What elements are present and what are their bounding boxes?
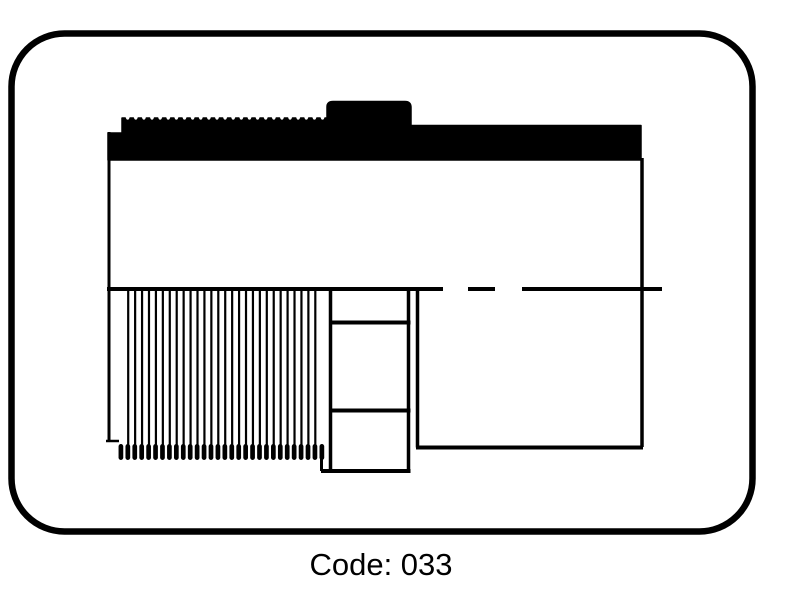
thread-tip — [167, 444, 172, 460]
thread-tip — [292, 444, 297, 460]
thread-tip — [160, 444, 165, 460]
thread-tip — [202, 444, 207, 460]
thread-tip — [174, 444, 179, 460]
thread-tip — [216, 444, 221, 460]
thread-tip — [181, 444, 186, 460]
thread-tip — [299, 444, 304, 460]
thread-tip — [195, 444, 200, 460]
thread-tip — [278, 444, 283, 460]
catalog-figure-card: Code: 033 — [0, 0, 796, 604]
thread-tip — [285, 444, 290, 460]
thread-tip — [236, 444, 241, 460]
thread-tip — [250, 444, 255, 460]
thread-tip — [243, 444, 248, 460]
pipe-fitting-diagram — [0, 0, 796, 604]
thread-tip — [264, 444, 269, 460]
thread-tip — [271, 444, 276, 460]
thread-tip — [257, 444, 262, 460]
thread-tip — [209, 444, 214, 460]
thread-tip — [146, 444, 151, 460]
thread-tip — [306, 444, 311, 460]
thread-tip — [188, 444, 193, 460]
thread-tip — [119, 444, 124, 460]
thread-tip — [229, 444, 234, 460]
figure-caption: Code: 033 — [0, 549, 762, 580]
thread-tip — [313, 444, 318, 460]
thread-tip — [223, 444, 228, 460]
thread-tip — [139, 444, 144, 460]
thread-tip — [132, 444, 137, 460]
thread-tip — [153, 444, 158, 460]
thread-tip — [125, 444, 130, 460]
